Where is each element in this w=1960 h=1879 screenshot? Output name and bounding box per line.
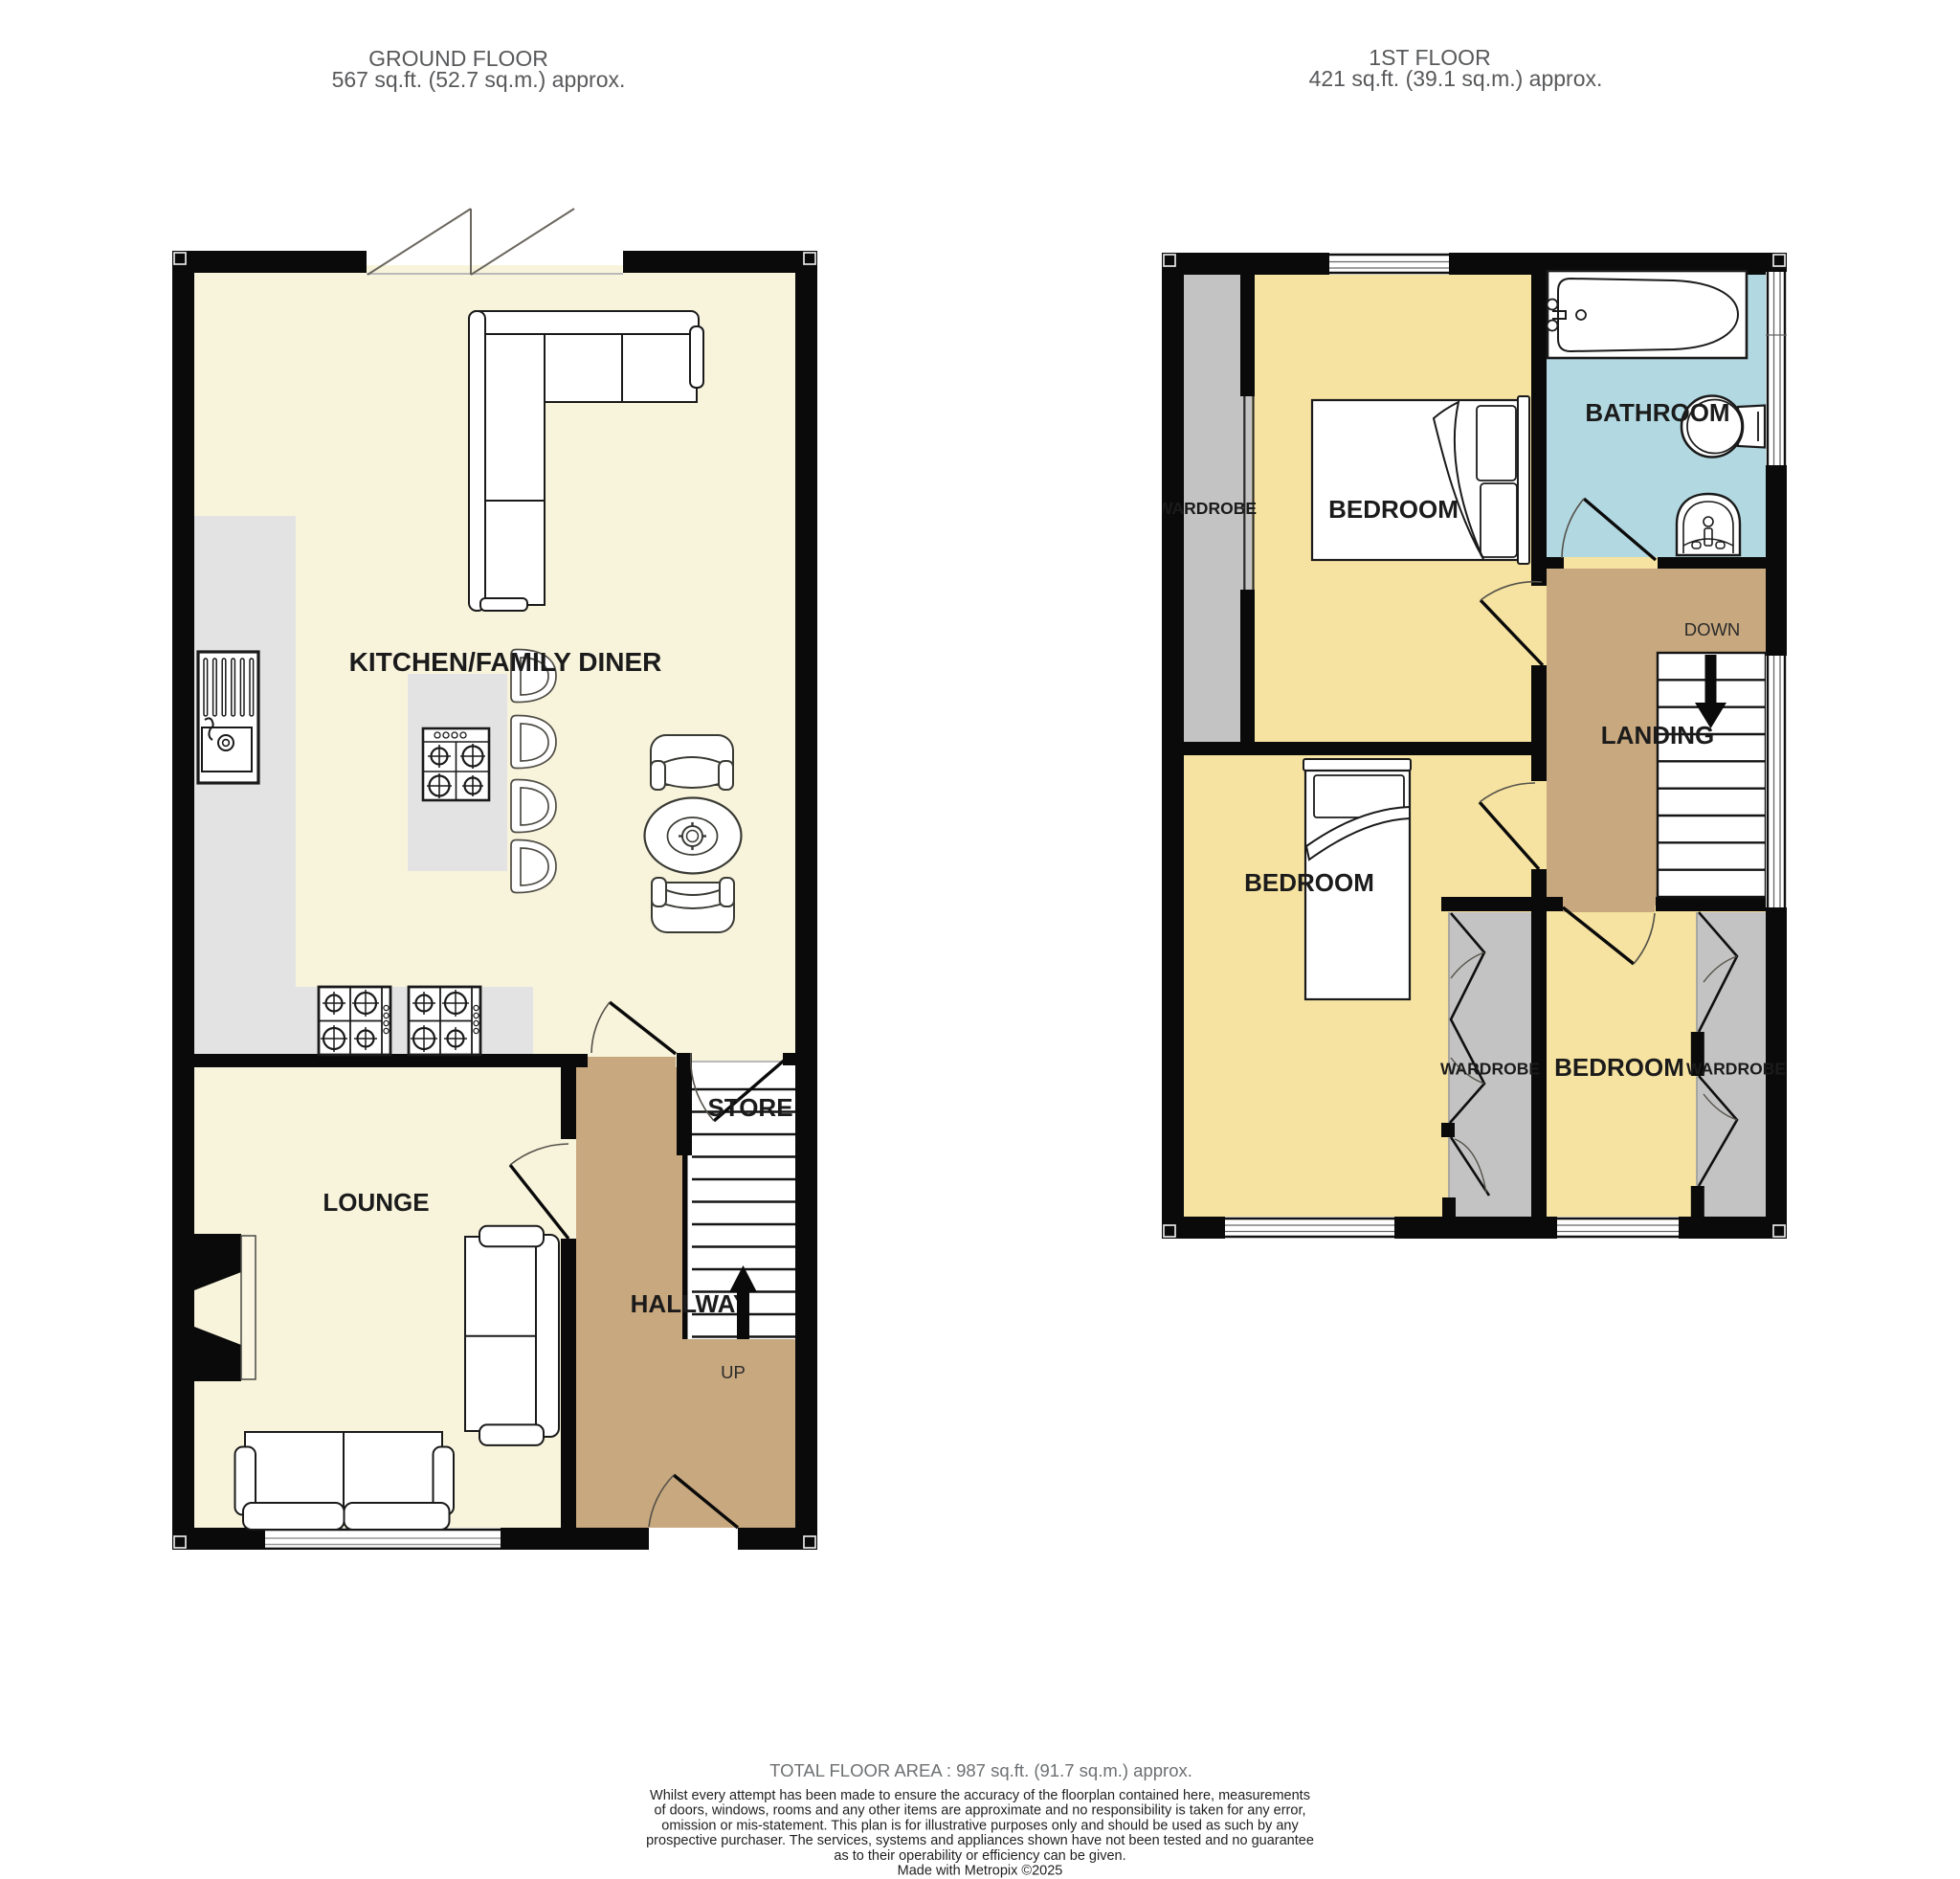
svg-text:BEDROOM: BEDROOM <box>1328 495 1459 524</box>
svg-text:UP: UP <box>721 1362 746 1382</box>
svg-text:BEDROOM: BEDROOM <box>1554 1053 1684 1082</box>
svg-text:WARDROBE: WARDROBE <box>1440 1060 1540 1079</box>
svg-text:Whilst every attempt has been: Whilst every attempt has been made to en… <box>650 1788 1310 1803</box>
svg-text:BATHROOM: BATHROOM <box>1585 398 1729 427</box>
svg-text:prospective purchaser. The ser: prospective purchaser. The services, sys… <box>646 1833 1314 1848</box>
svg-text:STORE: STORE <box>707 1093 792 1122</box>
svg-text:HALLWAY: HALLWAY <box>631 1289 750 1318</box>
svg-text:KITCHEN/FAMILY DINER: KITCHEN/FAMILY DINER <box>349 647 662 677</box>
svg-text:567 sq.ft. (52.7 sq.m.) approx: 567 sq.ft. (52.7 sq.m.) approx. <box>332 67 626 92</box>
svg-text:omission or mis-statement. Thi: omission or mis-statement. This plan is … <box>661 1818 1299 1833</box>
svg-text:TOTAL FLOOR AREA : 987 sq.ft.: TOTAL FLOOR AREA : 987 sq.ft. (91.7 sq.m… <box>769 1760 1192 1780</box>
svg-text:Made with Metropix ©2025: Made with Metropix ©2025 <box>898 1864 1063 1879</box>
svg-text:421 sq.ft. (39.1 sq.m.) approx: 421 sq.ft. (39.1 sq.m.) approx. <box>1309 66 1603 91</box>
svg-text:BEDROOM: BEDROOM <box>1244 868 1374 897</box>
svg-text:DOWN: DOWN <box>1684 619 1741 639</box>
svg-text:LANDING: LANDING <box>1601 721 1714 749</box>
svg-text:LOUNGE: LOUNGE <box>323 1188 429 1217</box>
svg-text:WARDROBE: WARDROBE <box>1157 499 1257 518</box>
svg-text:WARDROBE: WARDROBE <box>1686 1060 1786 1079</box>
svg-text:as to their operability or eff: as to their operability or efficiency ca… <box>834 1848 1125 1864</box>
svg-text:of doors, windows, rooms and a: of doors, windows, rooms and any other i… <box>654 1803 1305 1819</box>
